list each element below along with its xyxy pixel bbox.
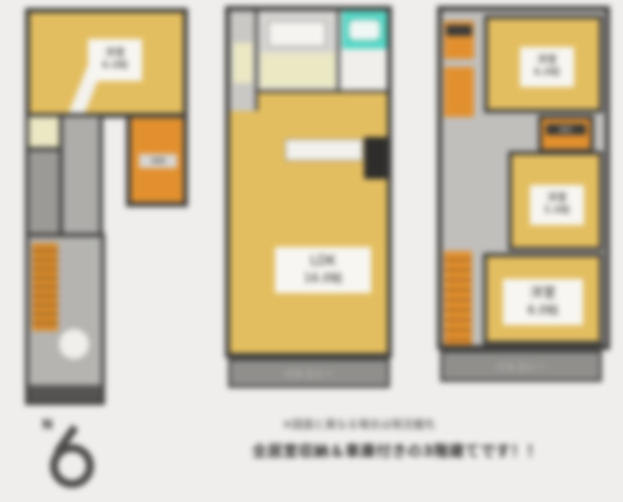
north-compass-icon: N	[40, 416, 110, 496]
closet-3f: WIC	[538, 115, 594, 153]
floorplan-3f: 洋室 6.0帖 WIC 洋室 5.0帖	[0, 0, 623, 410]
room-label-bedroom-top-3f: 洋室 6.0帖	[520, 47, 574, 87]
stair-label-band	[446, 25, 472, 36]
room-bedroom-top-3f: 洋室 6.0帖	[484, 15, 603, 113]
room-label-bedroom-mid-3f: 洋室 5.0帖	[530, 185, 584, 225]
room-size: 6.0帖	[527, 303, 558, 318]
room-name: 洋室	[537, 55, 557, 68]
caption-note: ※図面と異なる場合は現況優先	[255, 416, 435, 432]
room-size: 5.0帖	[544, 205, 570, 218]
outline-3f: 洋室 6.0帖 WIC 洋室 5.0帖	[437, 6, 610, 350]
blurred-scene: 洋室 6.0帖 収納	[0, 0, 623, 502]
closet-label-band: WIC	[546, 124, 586, 135]
floorplan-image: 洋室 6.0帖 収納	[0, 0, 623, 502]
room-name: 洋室	[530, 286, 556, 302]
stair-segment-top-3f	[444, 21, 474, 59]
room-size: 6.0帖	[534, 67, 560, 80]
stair-segment-mid-3f	[444, 67, 474, 117]
balcony-label: バルコニー	[496, 360, 546, 373]
caption-headline: 全居室収納＆車庫付きの3階建てです！！	[252, 440, 542, 461]
room-label-bedroom-bottom-3f: 洋室 6.0帖	[503, 279, 583, 325]
balcony-3f: バルコニー	[440, 350, 602, 382]
room-bedroom-bottom-3f: 洋室 6.0帖	[483, 253, 603, 345]
compass-north-letter: N	[42, 418, 53, 433]
room-name: 洋室	[547, 193, 567, 206]
stairs-3f	[444, 251, 472, 345]
room-bedroom-mid-3f: 洋室 5.0帖	[508, 151, 603, 251]
closet-label: WIC	[559, 126, 573, 134]
compass-ring	[50, 444, 94, 488]
